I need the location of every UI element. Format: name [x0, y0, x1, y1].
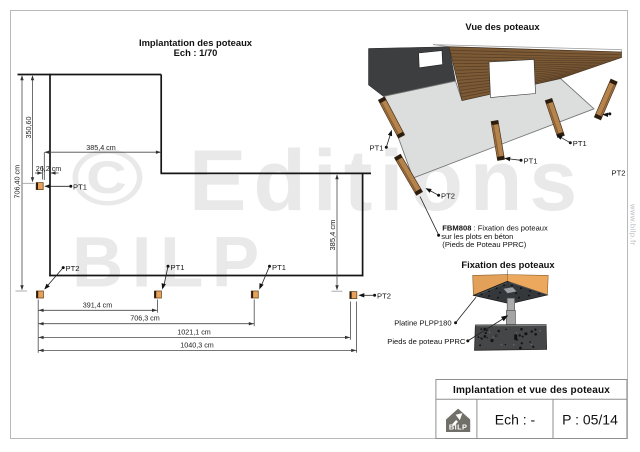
svg-text:706,3 cm: 706,3 cm	[130, 314, 160, 323]
svg-text:PT1: PT1	[573, 139, 587, 148]
svg-text:26,2 cm: 26,2 cm	[36, 164, 62, 173]
svg-text:P : 05/14: P : 05/14	[562, 412, 618, 428]
svg-text:Implantation et vue des poteau: Implantation et vue des poteaux	[453, 385, 610, 396]
svg-text:PT1: PT1	[272, 263, 286, 272]
svg-text:PT2: PT2	[66, 264, 80, 273]
svg-text:1021,1 cm: 1021,1 cm	[177, 327, 211, 336]
svg-text:Ech : 1/70: Ech : 1/70	[174, 47, 218, 58]
svg-text:BILP: BILP	[449, 422, 467, 431]
svg-text:Platine PLPP180: Platine PLPP180	[394, 319, 451, 328]
svg-text:706,40 cm: 706,40 cm	[13, 165, 22, 199]
svg-text:www.bilp.fr: www.bilp.fr	[629, 203, 638, 246]
svg-text:(Pieds de Poteau PPRC): (Pieds de Poteau PPRC)	[442, 240, 526, 249]
svg-text:1040,3 cm: 1040,3 cm	[180, 341, 214, 350]
svg-text:PT1: PT1	[524, 157, 538, 166]
svg-text:PT1: PT1	[370, 144, 384, 153]
svg-text:Vue des poteaux: Vue des poteaux	[465, 21, 540, 32]
svg-text:Ech : -: Ech : -	[495, 412, 536, 428]
svg-text:PT1: PT1	[171, 263, 185, 272]
svg-text:PT2: PT2	[377, 291, 391, 300]
svg-text:PT1: PT1	[73, 182, 87, 191]
svg-text:PT2: PT2	[441, 192, 455, 201]
svg-text:391,4 cm: 391,4 cm	[83, 300, 113, 309]
svg-text:350,60: 350,60	[24, 117, 33, 139]
svg-text:385,4 cm: 385,4 cm	[328, 220, 337, 251]
svg-text:385,4 cm: 385,4 cm	[86, 143, 116, 152]
svg-text:PT2: PT2	[612, 169, 626, 178]
svg-text:Fixation des poteaux: Fixation des poteaux	[461, 259, 555, 270]
svg-text:Pieds de poteau PPRC: Pieds de poteau PPRC	[387, 337, 466, 346]
